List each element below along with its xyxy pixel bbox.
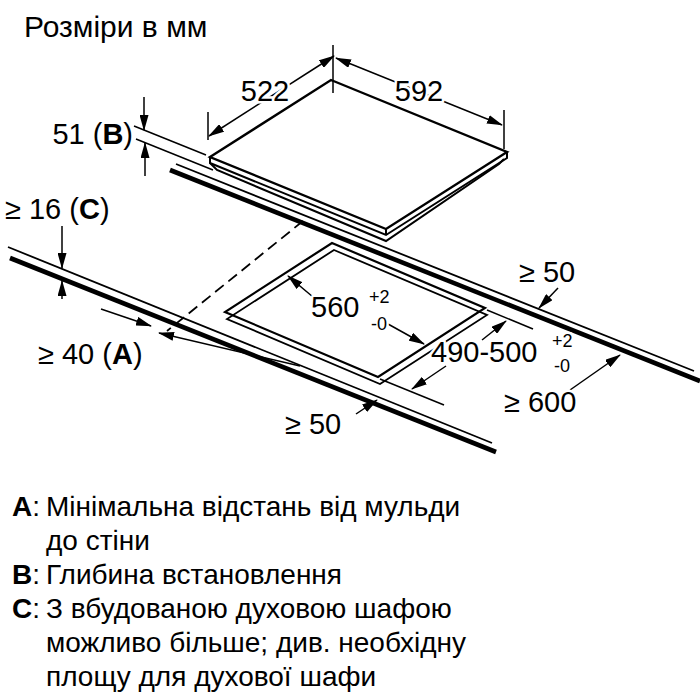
dim-490-500-label: 490-500 — [431, 336, 537, 368]
dim-51b-label: 51 (B) — [52, 118, 133, 150]
dim-50-front-label: ≥ 50 — [285, 408, 341, 440]
legend-text-c: З вбудованою духовою шафою можливо більш… — [46, 592, 466, 694]
dim-600-arrow — [570, 355, 620, 390]
dim-50-rear-arrow — [539, 288, 558, 308]
dim-490-arrow-downleft — [412, 366, 446, 389]
dim-560-tol-minus: -0 — [371, 314, 387, 334]
legend-key-a: A: — [12, 490, 46, 558]
dim-51b-ext-lower — [136, 139, 213, 170]
manual-page: Розміри в мм — [0, 0, 700, 700]
legend-item-c: C: З вбудованою духовою шафою можливо бі… — [12, 592, 472, 694]
legend-text-b: Глибина встановлення — [46, 558, 342, 592]
dim-50-rear-label: ≥ 50 — [519, 256, 575, 288]
dim-490-500-tol-minus: -0 — [554, 356, 570, 376]
dim-592-label: 592 — [395, 75, 443, 107]
dim-560-tol-plus: +2 — [369, 287, 390, 307]
legend-text-a: Мінімальна відстань від мульди до стіни — [46, 490, 460, 558]
legend-key-b: B: — [12, 558, 46, 592]
installation-diagram: 522 592 51 (B) ≥ 16 (C) ≥ 40 (A) — [0, 0, 700, 480]
legend-item-b: B: Глибина встановлення — [12, 558, 472, 592]
dim-522-label: 522 — [241, 75, 289, 107]
dim-560-label: 560 — [311, 291, 359, 323]
dim-600-label: ≥ 600 — [504, 386, 576, 418]
dim-16c-label: ≥ 16 (C) — [5, 193, 110, 225]
dim-40a-label: ≥ 40 (A) — [38, 338, 143, 370]
dim-490-500-tol-plus: +2 — [552, 331, 573, 351]
legend-key-c: C: — [12, 592, 46, 694]
dim-560-arrow-downright — [388, 324, 424, 344]
legend: A: Мінімальна відстань від мульди до сті… — [12, 490, 472, 694]
dim-560-arrow-upleft — [288, 276, 313, 297]
dim-40a-arrow-left — [159, 333, 300, 366]
legend-item-a: A: Мінімальна відстань від мульди до сті… — [12, 490, 472, 558]
dim-51b — [134, 97, 213, 176]
